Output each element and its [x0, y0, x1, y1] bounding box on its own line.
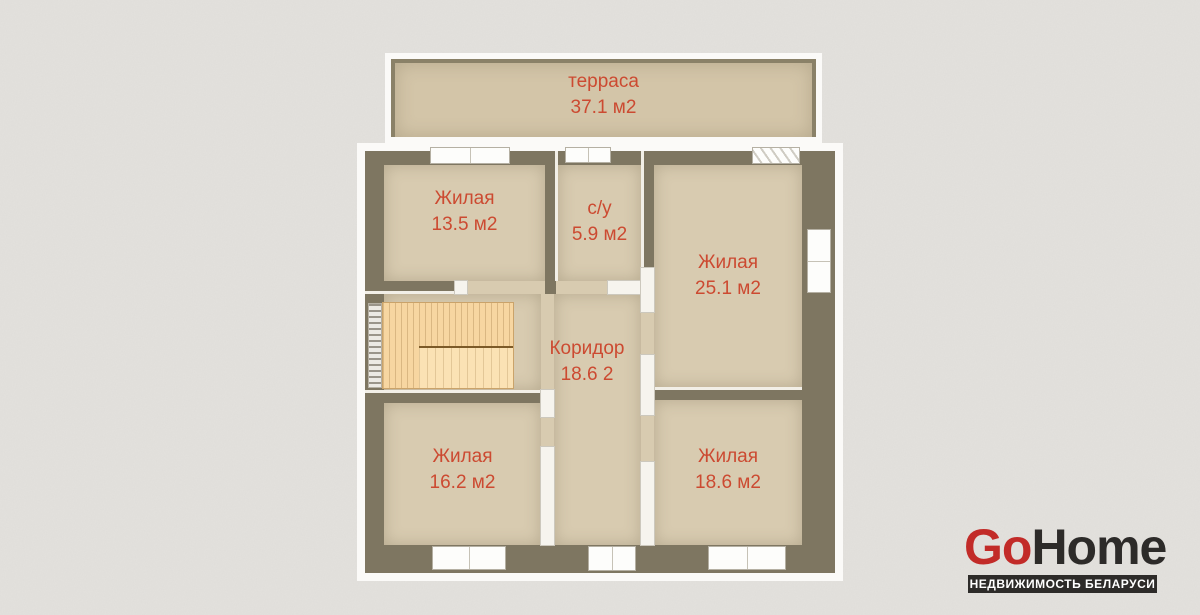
window-living-top-right-side [807, 229, 831, 293]
wall-bathroom-left [545, 151, 558, 281]
floor-corridor [554, 294, 641, 545]
room-label: Коридор 18.6 2 [504, 336, 670, 388]
window-pane-divider [612, 547, 613, 570]
building-outline: Жилая 13.5 м2 с/у 5.9 м2 Жилая 25.1 м2 К… [357, 143, 843, 581]
room-area: 25.1 м2 [654, 276, 802, 302]
wall-bathroom-right [641, 151, 654, 268]
wall-corridor-bottom-left [541, 447, 554, 545]
window-bathroom [565, 147, 611, 163]
wall-corridor-bottom-right [641, 462, 654, 545]
room-name: Коридор [504, 336, 670, 362]
room-name: Жилая [654, 250, 802, 276]
window-living-top-left [430, 147, 510, 164]
window-pane-divider [808, 261, 830, 262]
room-label: Жилая 18.6 м2 [654, 444, 802, 496]
wall-stub-bottom-left-door-a [541, 390, 554, 417]
gohome-wordmark: GoHome [964, 522, 1164, 572]
window-living-bottom-left [432, 546, 506, 570]
gohome-logo: GoHome НЕДВИЖИМОСТЬ БЕЛАРУСИ [964, 522, 1164, 593]
staircase-lower-flight [419, 346, 513, 388]
room-name: Жилая [654, 444, 802, 470]
room-area: 37.1 м2 [391, 95, 816, 121]
room-label: Жилая 25.1 м2 [654, 250, 802, 302]
room-terrace: терраса 37.1 м2 [385, 53, 822, 143]
wall-below-stairs [365, 390, 541, 403]
room-name: терраса [391, 69, 816, 95]
room-area: 18.6 м2 [654, 470, 802, 496]
door-opening-living-top-left [467, 281, 545, 294]
room-area: 16.2 м2 [384, 470, 541, 496]
wall-stub-top-right-door-a [641, 268, 654, 312]
window-corridor-bottom [588, 546, 636, 571]
logo-tagline: НЕДВИЖИМОСТЬ БЕЛАРУСИ [968, 575, 1157, 593]
window-pane-divider [747, 547, 748, 569]
window-living-top-right-top [752, 147, 800, 164]
wall-between-right-rooms [654, 387, 802, 400]
room-name: Жилая [384, 186, 545, 212]
room-label: Жилая 13.5 м2 [384, 186, 545, 238]
room-name: с/у [558, 196, 641, 222]
floorplan-page: терраса 37.1 м2 [0, 0, 1200, 615]
room-area: 5.9 м2 [558, 222, 641, 248]
wall-stub-hall-door [455, 281, 467, 294]
staircase [382, 302, 514, 389]
room-name: Жилая [384, 444, 541, 470]
door-opening-bathroom [556, 281, 608, 294]
room-label: терраса 37.1 м2 [391, 69, 816, 121]
wall-below-living-top-left [365, 281, 467, 294]
building-interior: Жилая 13.5 м2 с/у 5.9 м2 Жилая 25.1 м2 К… [365, 151, 835, 573]
room-area: 18.6 2 [504, 362, 670, 388]
door-opening-living-bottom-left [541, 417, 554, 447]
logo-text-home: Home [1031, 519, 1166, 575]
window-living-bottom-right [708, 546, 786, 570]
staircase-railing [368, 303, 382, 388]
room-label: Жилая 16.2 м2 [384, 444, 541, 496]
window-pane-divider [470, 148, 471, 163]
door-opening-living-bottom-right [641, 415, 654, 462]
window-pane-divider [469, 547, 470, 569]
logo-text-go: Go [964, 519, 1031, 575]
room-label: с/у 5.9 м2 [558, 196, 641, 248]
window-pane-divider [588, 148, 589, 162]
room-area: 13.5 м2 [384, 212, 545, 238]
